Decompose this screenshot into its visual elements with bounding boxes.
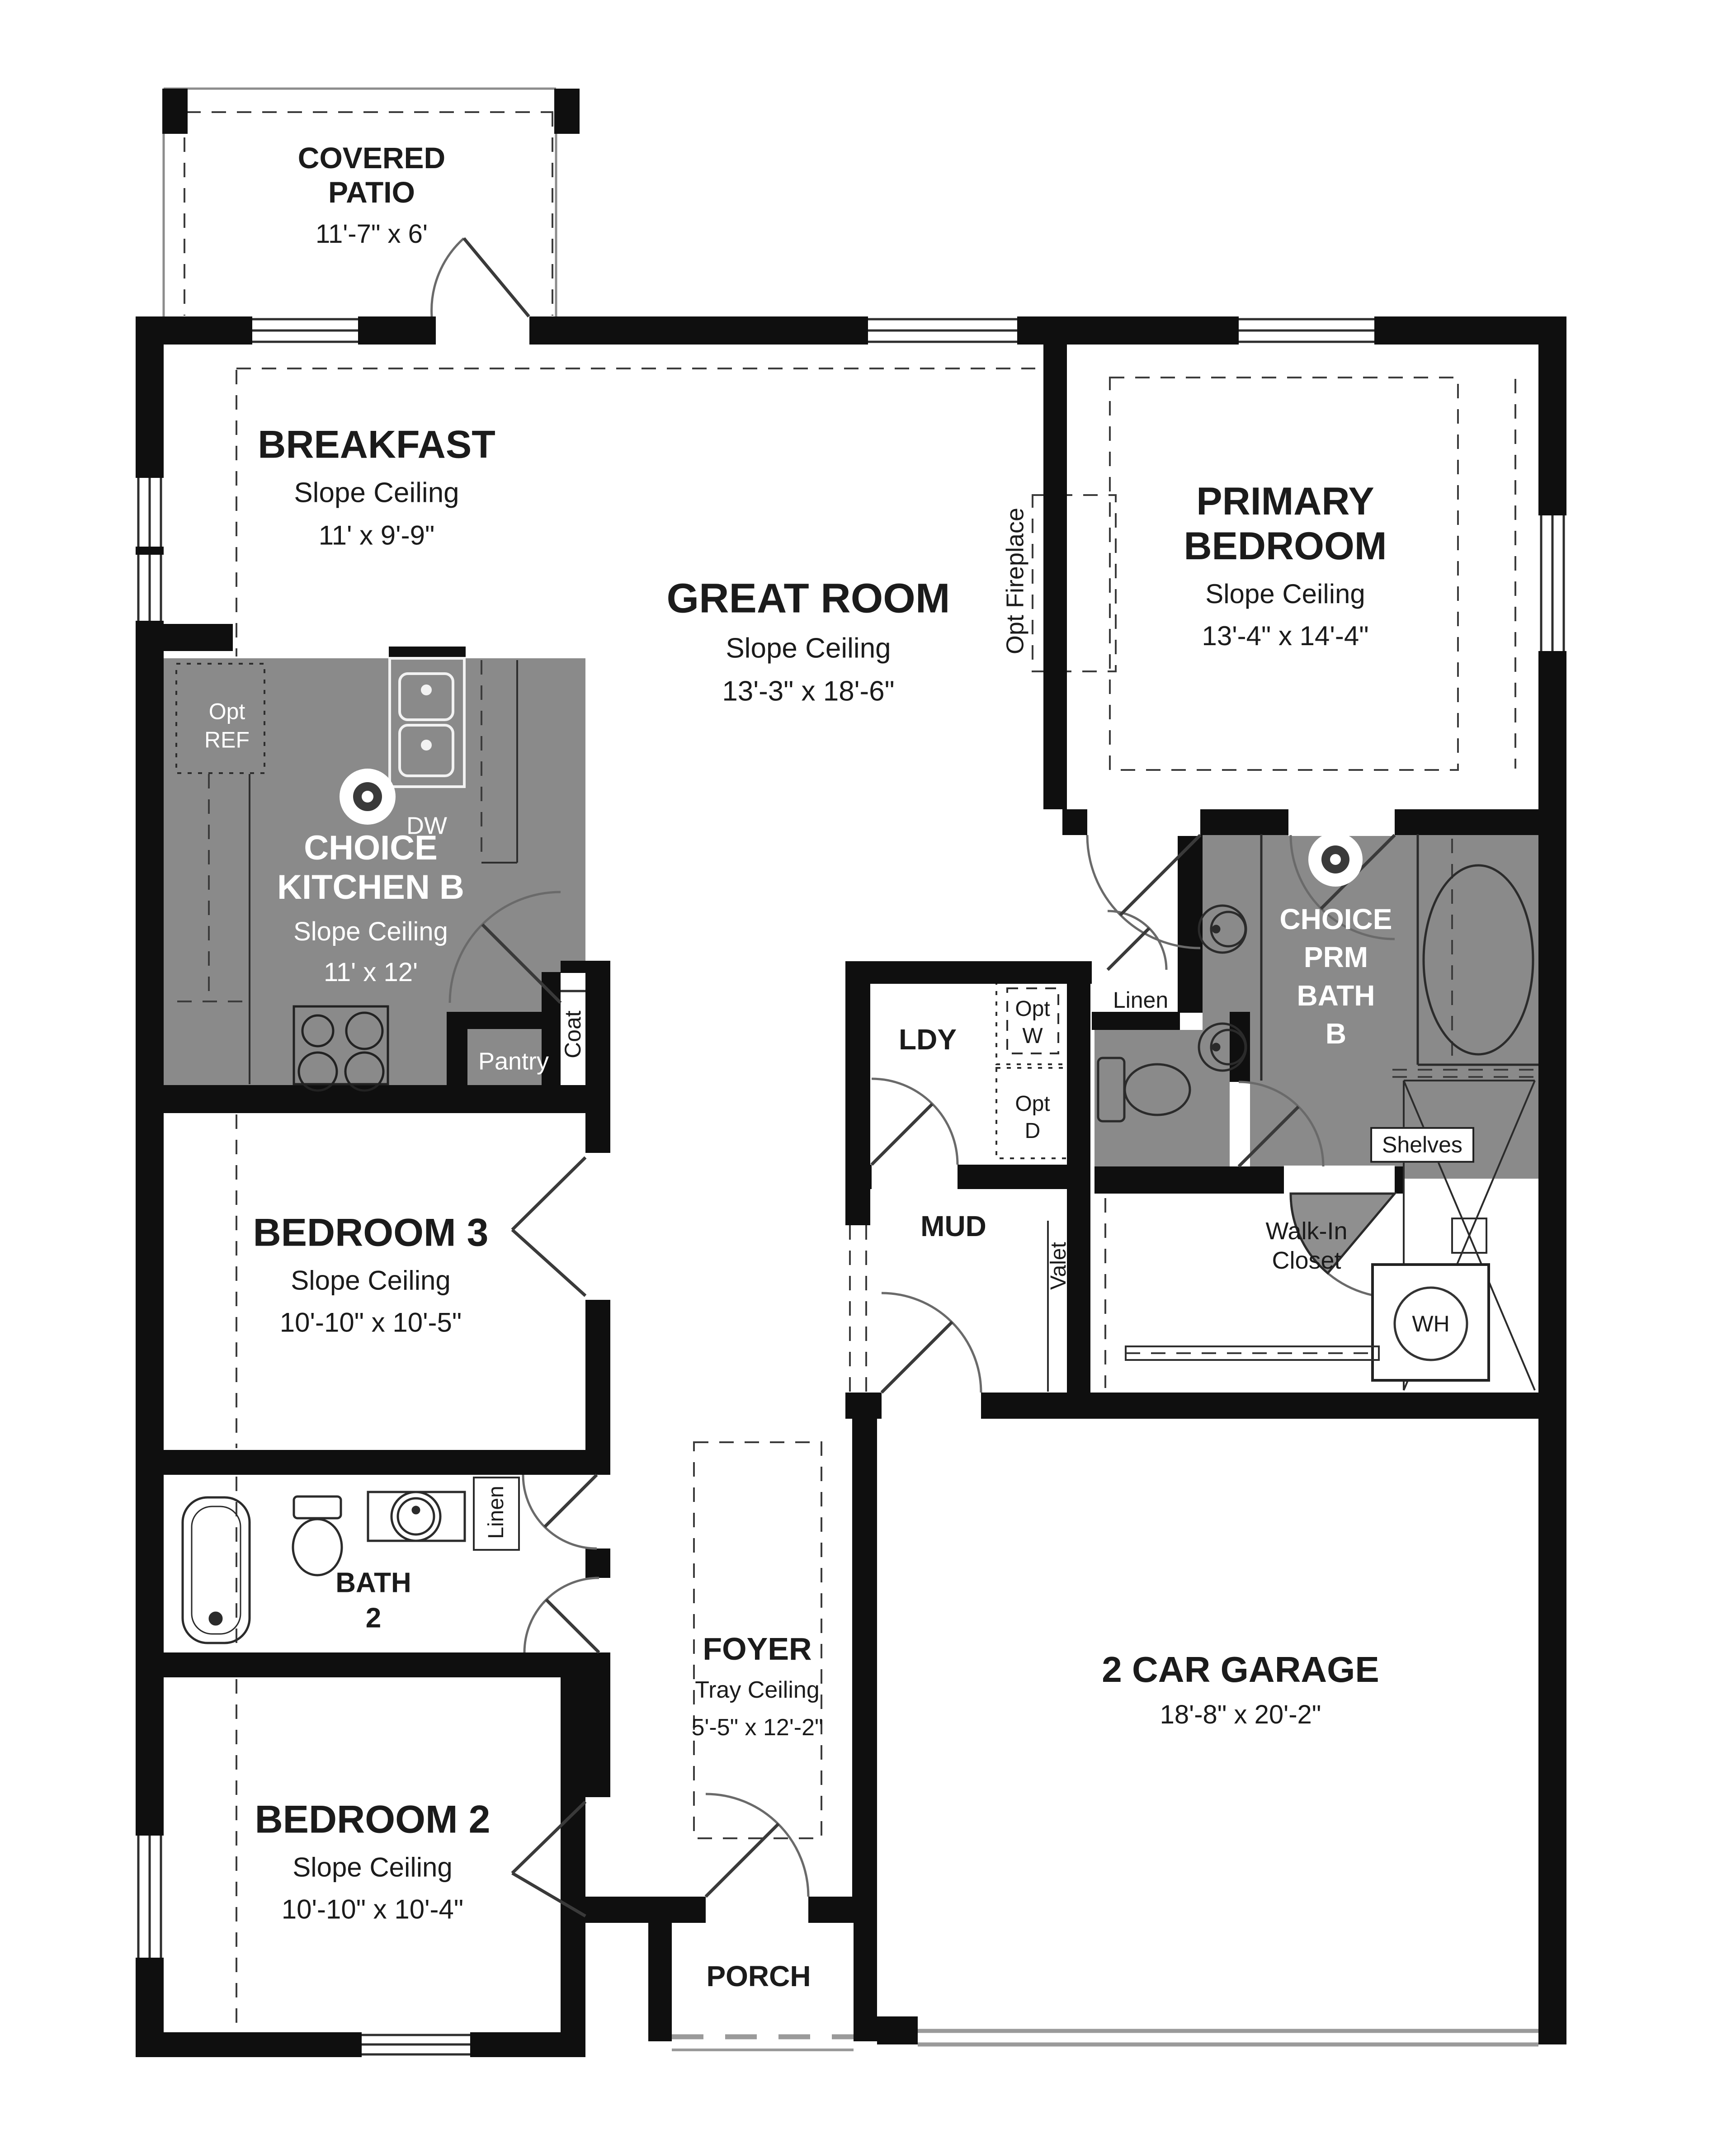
room-dims: 10'-10" x 10'-5" <box>253 1305 489 1339</box>
valet-label: Valet <box>1037 1242 1080 1290</box>
room-dims: 10'-10" x 10'-4" <box>255 1892 491 1926</box>
room-name: CHOICE PRM BATH B <box>1280 900 1392 1053</box>
great-room-label: GREAT ROOM Slope Ceiling 13'-3" x 18'-6" <box>667 567 950 718</box>
room-name: FOYER <box>692 1631 823 1667</box>
opt-fireplace-label: Opt Fireplace <box>992 508 1039 654</box>
floor-plan: COVERED PATIO 11'-7" x 6' BREAKFAST Slop… <box>0 0 1736 2148</box>
room-name: BEDROOM 3 <box>253 1211 489 1256</box>
linen-hall-label: Linen <box>1113 978 1168 1023</box>
room-dims: 11'-7" x 6' <box>298 218 445 251</box>
water-heater-label: WH <box>1412 1302 1449 1346</box>
room-name: 2 CAR GARAGE <box>1102 1649 1379 1690</box>
walk-in-closet-label: Walk-In Closet <box>1265 1209 1347 1284</box>
room-dims: 11' x 9'-9" <box>258 519 495 552</box>
mud-label: MUD <box>920 1202 986 1251</box>
garage-label: 2 CAR GARAGE 18'-8" x 20'-2" <box>1102 1641 1379 1740</box>
room-dims: 5'-5" x 12'-2" <box>692 1713 823 1742</box>
foyer-label: FOYER Tray Ceiling 5'-5" x 12'-2" <box>692 1623 823 1751</box>
porch-label: PORCH <box>706 1952 811 2002</box>
breakfast-label: BREAKFAST Slope Ceiling 11' x 9'-9" <box>258 414 495 560</box>
primary-bath-360-icon[interactable] <box>1308 832 1363 887</box>
room-ceiling: Slope Ceiling <box>277 916 464 949</box>
room-dims: 18'-8" x 20'-2" <box>1102 1699 1379 1732</box>
shelves-label: Shelves <box>1370 1119 1474 1171</box>
room-ceiling: Slope Ceiling <box>255 1850 491 1884</box>
laundry-label: LDY <box>899 1015 957 1065</box>
room-name: BREAKFAST <box>258 422 495 467</box>
kitchen-360-icon[interactable] <box>340 769 396 825</box>
room-name: PRIMARY BEDROOM <box>1184 479 1387 569</box>
room-dims: 13'-4" x 14'-4" <box>1184 619 1387 653</box>
room-dims: 13'-3" x 18'-6" <box>667 674 950 709</box>
room-ceiling: Tray Ceiling <box>692 1675 823 1704</box>
kitchen-label: CHOICE KITCHEN B Slope Ceiling 11' x 12' <box>277 820 464 997</box>
room-ceiling: Slope Ceiling <box>253 1263 489 1297</box>
covered-patio-label: COVERED PATIO 11'-7" x 6' <box>298 133 445 259</box>
primary-bedroom-label: PRIMARY BEDROOM Slope Ceiling 13'-4" x 1… <box>1184 471 1387 661</box>
bath2-label: BATH 2 <box>335 1558 411 1644</box>
room-ceiling: Slope Ceiling <box>667 631 950 666</box>
opt-dryer-label: Opt D <box>1015 1082 1050 1153</box>
pantry-label: Pantry <box>478 1038 549 1085</box>
garage-door-opening <box>672 2031 1538 2050</box>
room-ceiling: Slope Ceiling <box>258 475 495 510</box>
opt-washer-label: Opt W <box>1015 987 1050 1058</box>
linen-bath2-label: Linen <box>475 1486 518 1539</box>
bedroom2-label: BEDROOM 2 Slope Ceiling 10'-10" x 10'-4" <box>255 1789 491 1935</box>
opt-ref-label: Opt REF <box>204 689 250 762</box>
coat-label: Coat <box>551 1010 595 1058</box>
bedroom3-label: BEDROOM 3 Slope Ceiling 10'-10" x 10'-5" <box>253 1203 489 1348</box>
primary-bath-label: CHOICE PRM BATH B <box>1280 892 1392 1061</box>
room-ceiling: Slope Ceiling <box>1184 577 1387 611</box>
room-name: GREAT ROOM <box>667 575 950 623</box>
room-name: CHOICE KITCHEN B <box>277 828 464 907</box>
room-name: BEDROOM 2 <box>255 1798 491 1842</box>
room-dims: 11' x 12' <box>277 956 464 989</box>
room-name: COVERED PATIO <box>298 141 445 210</box>
